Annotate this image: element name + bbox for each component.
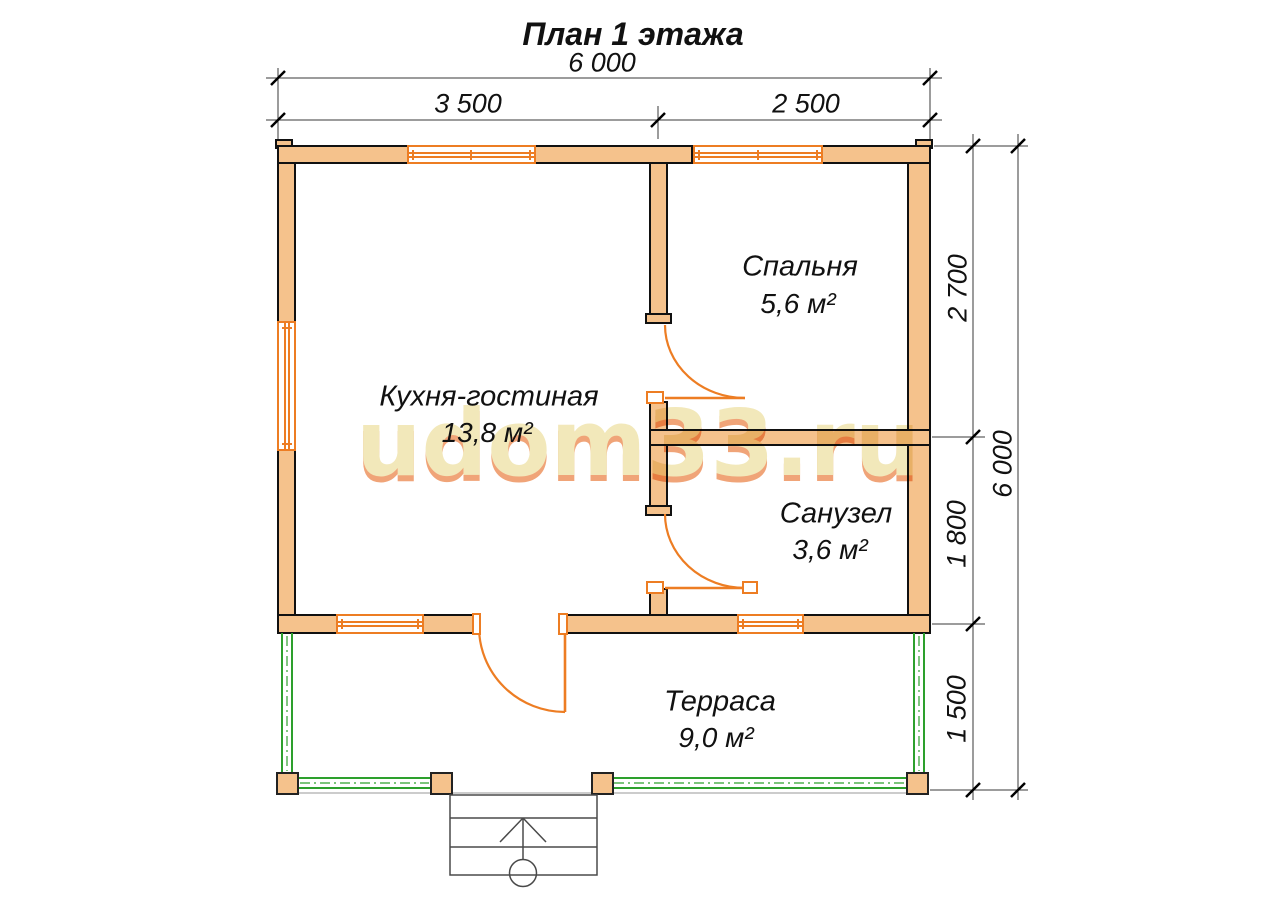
dim-top-total: 6 000 [568,50,636,77]
window-top-kitchen [408,146,535,163]
dim-right-total: 6 000 [990,430,1017,498]
dim-top-right: 2 500 [772,91,840,118]
entrance-steps [450,795,597,887]
room-area-terrace: 9,0 м² [678,724,753,752]
window-bottom-kitchen [337,615,423,633]
entrance-point-icon [510,860,537,887]
room-label-kitchen: Кухня-гостиная [379,383,598,412]
dim-right-2700: 2 700 [945,254,972,322]
page-title: План 1 этажа [522,18,743,50]
window-left-kitchen [278,322,295,450]
terrace-railing [282,633,924,788]
dim-top-left: 3 500 [434,91,502,118]
room-area-kitchen: 13,8 м² [442,419,533,447]
interior-walls [646,163,930,615]
dim-right-1800: 1 800 [944,500,971,568]
window-top-bedroom [694,146,822,163]
window-bottom-bathroom [738,615,803,633]
arrow-up-icon [500,818,523,842]
door-entrance [473,614,567,712]
door-bathroom [647,514,757,593]
floor-plan: udom33.ru План 1 этажа 6 000 3 500 2 500… [0,0,1280,905]
dim-right-1500: 1 500 [944,675,971,743]
room-label-bathroom: Санузел [780,500,893,529]
room-label-bedroom: Спальня [742,253,858,282]
room-area-bathroom: 3,6 м² [792,536,867,564]
room-area-bedroom: 5,6 м² [760,290,835,318]
room-label-terrace: Терраса [664,688,776,717]
